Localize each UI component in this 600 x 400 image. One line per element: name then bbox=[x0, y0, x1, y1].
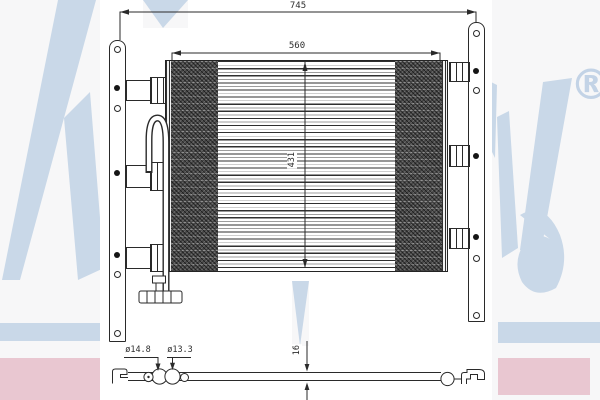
dim-745-lines bbox=[120, 9, 476, 40]
dim-431-lines bbox=[303, 62, 308, 268]
dim-label-port-large: ø14.8 bbox=[121, 345, 155, 355]
dimension-linework bbox=[0, 0, 600, 400]
receiver-pipe bbox=[139, 118, 182, 303]
dim-label-profile-height: 16 bbox=[292, 344, 302, 356]
bottom-profile-view bbox=[113, 369, 485, 386]
dim-560-lines bbox=[172, 50, 440, 60]
dim-label-core-width: 560 bbox=[275, 41, 319, 51]
dim-16-lines bbox=[305, 341, 310, 400]
dim-label-port-small: ø13.3 bbox=[163, 345, 197, 355]
dim-label-core-height: 431 bbox=[287, 151, 297, 168]
port-leader-lines bbox=[124, 358, 191, 372]
dim-label-overall-width: 745 bbox=[276, 1, 320, 11]
catalog-product-image: ® bbox=[0, 0, 600, 400]
